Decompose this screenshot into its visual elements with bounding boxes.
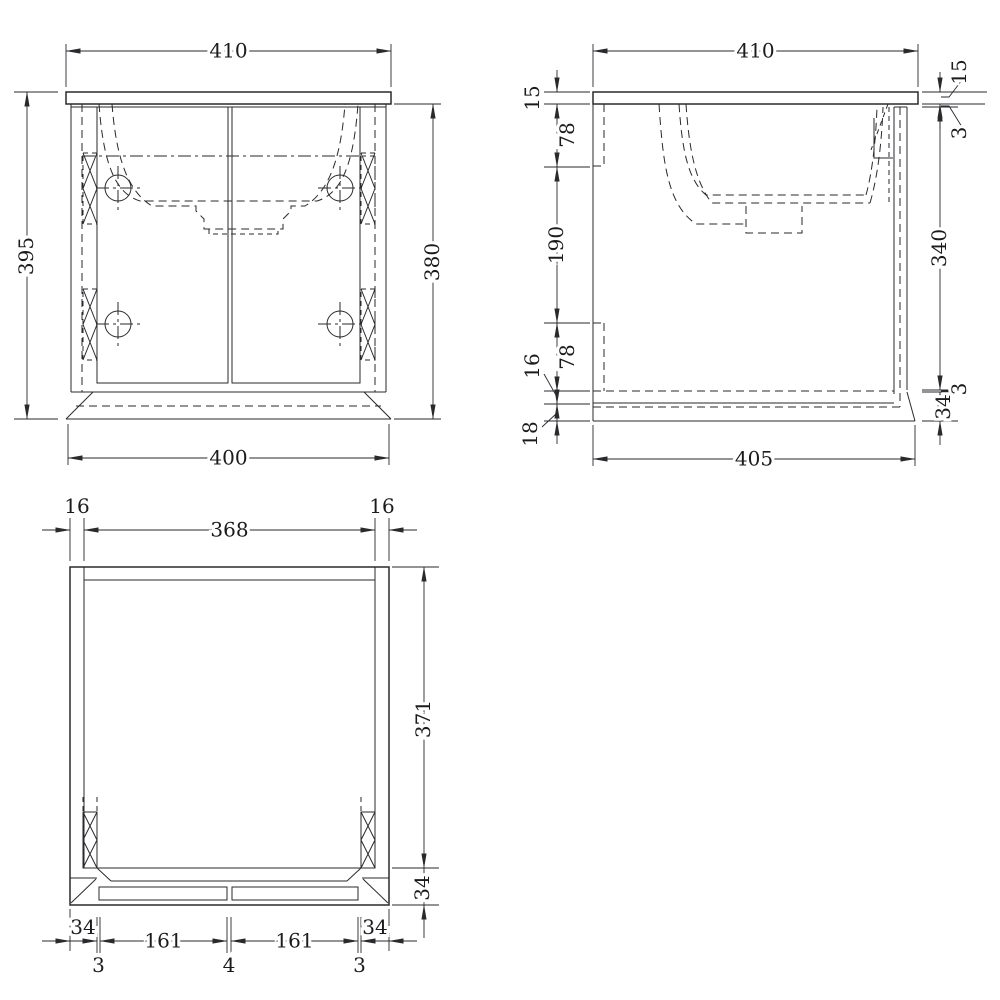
dim-bottom-panel-left-16: 16 [64, 494, 89, 518]
dim-front-height-left: 395 [14, 237, 38, 275]
dim-side-shelf-16: 16 [520, 353, 544, 378]
dim-side-upper-78: 78 [555, 122, 579, 147]
dim-side-counter-thickness-right: 15 [947, 59, 971, 84]
front-dimensions: 410 395 380 400 [14, 39, 444, 470]
dim-side-gap-bottom-3: 3 [947, 383, 971, 396]
dim-side-width-bottom: 405 [735, 447, 773, 471]
dim-front-width-top: 410 [209, 39, 247, 63]
dim-bottom-reveal-left-3: 3 [92, 953, 105, 977]
front-door-left [97, 107, 228, 383]
hinge-plate-bottom-left [83, 289, 97, 360]
bottom-door-edge-left [99, 887, 227, 900]
dim-side-gap-top-3: 3 [947, 127, 971, 140]
side-basin-outline [659, 104, 893, 233]
hinge-plate-top-right [361, 153, 375, 224]
dim-side-inner-height-340: 340 [927, 229, 951, 267]
dim-bottom-edge-left-34: 34 [70, 915, 95, 939]
front-countertop [66, 92, 391, 104]
dim-side-middle-190: 190 [544, 226, 568, 264]
hinge-plate-bottom-right [361, 289, 375, 360]
bottom-cabinet-outline [70, 567, 389, 905]
dim-side-counter-thickness: 15 [520, 85, 544, 110]
dim-side-plinth-34: 34 [931, 394, 955, 419]
dim-bottom-depth-371: 371 [411, 700, 435, 738]
side-basin-mount [874, 118, 893, 158]
leader-3-top [941, 106, 962, 127]
dim-bottom-door-right-161: 161 [275, 929, 313, 953]
dim-bottom-edge-right-34: 34 [362, 915, 387, 939]
front-view: 410 395 380 400 [14, 39, 444, 470]
bottom-hinge-plates [83, 797, 375, 868]
side-countertop [593, 92, 918, 104]
side-drain-outline [746, 206, 802, 233]
bottom-hinge-plate-right [361, 797, 375, 868]
hinge-plate-top-left [83, 153, 97, 224]
dim-side-lower-78: 78 [555, 344, 579, 369]
dim-bottom-reveal-right-3: 3 [353, 953, 366, 977]
vanity-cabinet-drawing: 410 395 380 400 [0, 0, 1000, 1000]
bottom-hinge-plate-left [83, 797, 97, 868]
technical-drawing-page: 410 395 380 400 [0, 0, 1000, 1000]
hinge-cup-top-right [318, 166, 362, 210]
dim-bottom-gap-center-4: 4 [223, 953, 236, 977]
front-door-right [232, 107, 360, 383]
hinge-cup-top-left [96, 166, 140, 210]
dim-bottom-inner-width-368: 368 [210, 518, 248, 542]
dim-side-base-18: 18 [518, 421, 542, 446]
leader-16 [544, 374, 557, 397]
dim-bottom-front-band-34: 34 [410, 875, 434, 900]
bottom-door-edge-right [232, 887, 358, 900]
dim-bottom-door-left-161: 161 [144, 929, 182, 953]
bottom-view: 16 368 16 371 34 34 161 161 34 3 4 3 [42, 494, 439, 977]
bottom-outer-outline [70, 567, 389, 905]
front-cabinet-outline [66, 92, 391, 419]
dim-bottom-panel-right-16: 16 [369, 494, 394, 518]
hinge-cup-bottom-right [318, 302, 362, 346]
dim-front-height-right: 380 [420, 243, 444, 281]
front-hinge-cups [96, 166, 362, 346]
side-view: 410 15 78 190 78 16 18 15 [518, 39, 987, 471]
dim-front-width-bottom: 400 [209, 446, 247, 470]
dim-side-width-top: 410 [736, 39, 774, 63]
hinge-cup-bottom-left [96, 302, 140, 346]
leader-18 [542, 413, 557, 427]
side-cabinet-outline [593, 92, 918, 421]
front-hinge-plates [83, 153, 375, 360]
